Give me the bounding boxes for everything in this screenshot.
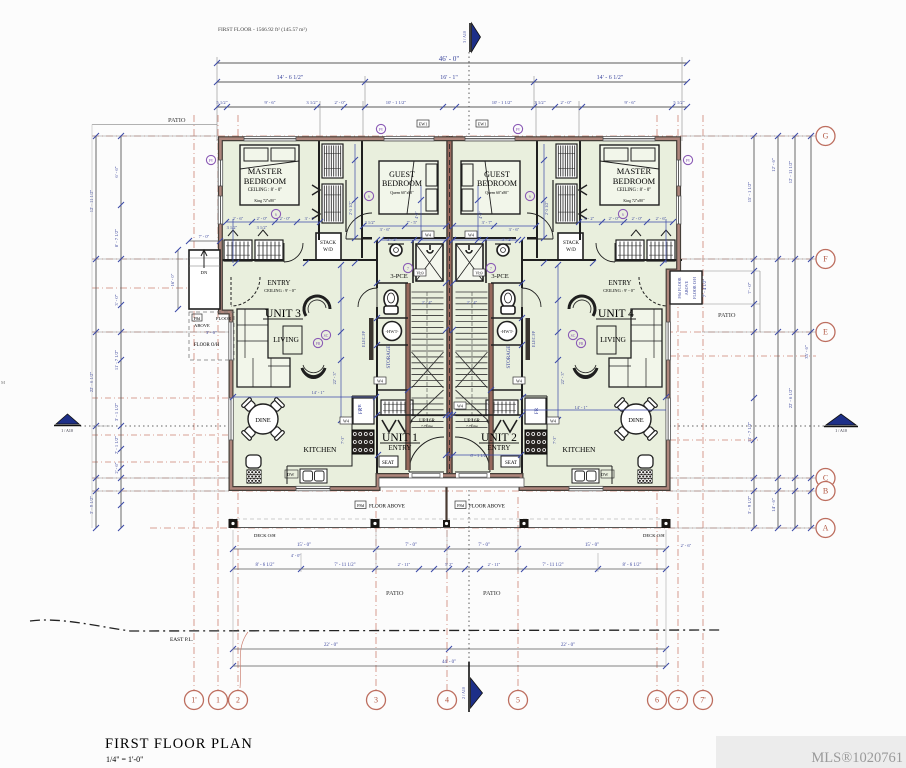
svg-text:PATIO: PATIO xyxy=(718,312,736,319)
svg-text:8' - 6 1/2": 8' - 6 1/2" xyxy=(623,563,642,568)
svg-text:7' - 11 1/2": 7' - 11 1/2" xyxy=(542,563,563,568)
svg-text:22' - 3": 22' - 3" xyxy=(560,371,565,384)
svg-text:3-PCE: 3-PCE xyxy=(390,273,407,280)
svg-text:7'-3": 7'-3" xyxy=(340,436,345,444)
svg-text:7' - 0": 7' - 0" xyxy=(747,282,752,293)
svg-text:3' - 2": 3' - 2" xyxy=(584,216,595,221)
svg-text:2' - 1 1/2": 2' - 1 1/2" xyxy=(114,436,119,454)
svg-text:BEDROOM: BEDROOM xyxy=(613,176,656,186)
svg-text:PB: PB xyxy=(579,342,584,346)
svg-text:22' - 0": 22' - 0" xyxy=(324,643,338,648)
svg-text:PB: PB xyxy=(316,342,321,346)
svg-text:9' - 6": 9' - 6" xyxy=(264,100,275,105)
svg-text:EAST P.L.: EAST P.L. xyxy=(170,637,193,643)
svg-text:8' - 6 1/2": 8' - 6 1/2" xyxy=(256,563,275,568)
svg-text:EW1: EW1 xyxy=(419,122,428,127)
svg-text:King 72"x80": King 72"x80" xyxy=(254,199,276,203)
svg-text:DINE: DINE xyxy=(255,417,271,424)
svg-text:2' - 4": 2' - 4" xyxy=(422,300,433,305)
svg-text:7: 7 xyxy=(676,696,680,705)
svg-text:SC: SC xyxy=(571,334,576,338)
svg-text:1': 1' xyxy=(191,696,197,705)
svg-text:3: 3 xyxy=(374,696,378,705)
svg-text:6: 6 xyxy=(275,213,277,217)
svg-text:FIRST FLOOR PLAN: FIRST FLOOR PLAN xyxy=(105,736,253,752)
svg-text:3' - 9 1/2": 3' - 9 1/2" xyxy=(747,496,752,514)
svg-text:22' - 3": 22' - 3" xyxy=(332,371,337,384)
svg-text:4' - 0": 4' - 0" xyxy=(291,553,301,558)
svg-text:STACK: STACK xyxy=(563,241,579,246)
svg-text:DECK O/H: DECK O/H xyxy=(643,533,665,538)
svg-text:G: G xyxy=(823,132,829,141)
svg-text:-HWT-: -HWT- xyxy=(500,329,514,334)
svg-text:7' - 0": 7' - 0" xyxy=(405,543,417,548)
svg-text:FIRST FLOOR - 1566.92 ft² (: FIRST FLOOR - 1566.92 ft² (145.57 m²) xyxy=(218,26,307,33)
svg-text:5' 2": 5' 2" xyxy=(445,562,453,567)
svg-text:DINE: DINE xyxy=(628,417,644,424)
svg-text:W4: W4 xyxy=(457,404,464,409)
svg-text:CEILING : 9' - 0": CEILING : 9' - 0" xyxy=(603,288,635,293)
svg-text:F8d: F8d xyxy=(457,503,465,508)
svg-text:6: 6 xyxy=(622,213,624,217)
svg-text:7': 7' xyxy=(700,696,706,705)
svg-text:4'-0": 4'-0" xyxy=(414,211,419,219)
svg-text:12' - 11 1/2": 12' - 11 1/2" xyxy=(788,161,793,184)
svg-text:UNIT 2: UNIT 2 xyxy=(481,432,517,444)
svg-text:2' - 0": 2' - 0" xyxy=(257,216,268,221)
svg-text:GUEST: GUEST xyxy=(389,170,415,179)
svg-text:CEILING : 8' - 0": CEILING : 8' - 0" xyxy=(248,188,283,193)
svg-text:2' - 0": 2' - 0" xyxy=(632,216,643,221)
svg-text:10' - 1 1/2": 10' - 1 1/2" xyxy=(386,100,407,105)
svg-text:W4: W4 xyxy=(516,379,523,384)
svg-text:4: 4 xyxy=(445,696,449,705)
svg-text:22' - 0": 22' - 0" xyxy=(561,643,575,648)
svg-text:46' - 0": 46' - 0" xyxy=(439,55,460,63)
svg-text:FLOOR ABOVE: FLOOR ABOVE xyxy=(469,504,505,510)
svg-text:6' - 6": 6' - 6" xyxy=(114,166,119,177)
svg-text:3' - 6": 3' - 6" xyxy=(380,227,391,232)
svg-text:MASTER: MASTER xyxy=(248,166,283,176)
svg-text:W4: W4 xyxy=(377,379,384,384)
svg-text:22' - 6 1/2": 22' - 6 1/2" xyxy=(89,372,94,393)
svg-text:2' - 0": 2' - 0" xyxy=(280,216,291,221)
svg-text:3' - 1 1/2": 3' - 1 1/2" xyxy=(114,403,119,421)
svg-text:3 1/2": 3 1/2" xyxy=(365,220,376,225)
svg-text:B: B xyxy=(823,487,828,496)
svg-text:3 / A10: 3 / A10 xyxy=(462,31,467,43)
svg-text:7.75 rise: 7.75 rise xyxy=(421,424,433,428)
svg-text:E: E xyxy=(823,328,828,337)
svg-text:PV: PV xyxy=(516,128,521,132)
svg-text:FLOOR O/H: FLOOR O/H xyxy=(692,277,697,299)
svg-text:1 / A10: 1 / A10 xyxy=(835,428,847,433)
svg-text:2: 2 xyxy=(236,696,240,705)
svg-text:7'-3": 7'-3" xyxy=(552,436,557,444)
svg-text:-HWT-: -HWT- xyxy=(385,329,399,334)
svg-text:16' - 1": 16' - 1" xyxy=(440,75,458,81)
svg-text:9' - 6": 9' - 6" xyxy=(624,100,635,105)
svg-text:12' - 11 1/2": 12' - 11 1/2" xyxy=(89,190,94,213)
svg-text:F8d: F8d xyxy=(357,503,365,508)
svg-text:3' - 2": 3' - 2" xyxy=(387,237,398,242)
svg-text:EW1: EW1 xyxy=(478,122,487,127)
svg-text:MLS®1020761: MLS®1020761 xyxy=(811,750,903,766)
svg-text:F: F xyxy=(823,255,828,264)
svg-text:BEDROOM: BEDROOM xyxy=(477,179,517,188)
svg-text:16' - 0": 16' - 0" xyxy=(170,273,175,286)
svg-text:Vb9: Vb9 xyxy=(475,271,482,276)
svg-text:14' - 1": 14' - 1" xyxy=(312,390,325,395)
svg-text:14' - 6 1/2": 14' - 6 1/2" xyxy=(277,75,304,81)
svg-text:BEDROOM: BEDROOM xyxy=(382,179,422,188)
svg-text:2'-5 1/2": 2'-5 1/2" xyxy=(348,201,353,215)
svg-text:3 1/2": 3 1/2" xyxy=(257,225,268,230)
svg-text:3' - 2": 3' - 2" xyxy=(305,216,316,221)
svg-text:2' - 4": 2' - 4" xyxy=(467,300,478,305)
svg-text:DW: DW xyxy=(601,472,609,477)
svg-text:ENTRY: ENTRY xyxy=(609,279,632,287)
svg-text:2'-5 1/2": 2'-5 1/2" xyxy=(544,201,549,215)
svg-text:ABOVE: ABOVE xyxy=(684,280,689,295)
svg-text:3 1/2": 3 1/2" xyxy=(534,100,545,105)
svg-text:5 1/2": 5 1/2" xyxy=(673,100,684,105)
svg-text:7' - 5": 7' - 5" xyxy=(407,220,418,225)
svg-text:SEAT: SEAT xyxy=(382,461,394,466)
svg-text:22' - 6 1/2": 22' - 6 1/2" xyxy=(788,388,793,409)
svg-text:UNIT 1: UNIT 1 xyxy=(382,432,418,444)
svg-text:8' - 7 1/2": 8' - 7 1/2" xyxy=(114,229,119,247)
svg-text:FLOOR ABOVE: FLOOR ABOVE xyxy=(369,504,405,510)
svg-text:7' - 11 1/2": 7' - 11 1/2" xyxy=(334,563,355,568)
svg-text:FLOOR O/H: FLOOR O/H xyxy=(194,343,220,348)
svg-text:3' - 6": 3' - 6" xyxy=(509,227,520,232)
svg-text:11' - 7 1/2": 11' - 7 1/2" xyxy=(747,422,752,442)
svg-text:F8d FLOOR: F8d FLOOR xyxy=(677,277,682,298)
svg-text:DECK O/H: DECK O/H xyxy=(254,533,276,538)
svg-text:DN: DN xyxy=(201,270,208,275)
svg-text:DW: DW xyxy=(287,472,295,477)
svg-text:2' - 6": 2' - 6" xyxy=(656,216,667,221)
svg-text:35' - 6": 35' - 6" xyxy=(804,345,809,359)
svg-text:15' - 0": 15' - 0" xyxy=(585,543,599,548)
svg-text:3 1/2": 3 1/2" xyxy=(227,225,238,230)
svg-text:W4: W4 xyxy=(425,233,432,238)
svg-text:6: 6 xyxy=(655,696,659,705)
svg-text:6' - 1 1/2": 6' - 1 1/2" xyxy=(470,453,488,458)
svg-text:6: 6 xyxy=(529,195,531,199)
svg-text:CEILING : 8' - 0": CEILING : 8' - 0" xyxy=(617,188,652,193)
svg-text:W4: W4 xyxy=(468,233,475,238)
svg-text:ENTRY: ENTRY xyxy=(488,444,511,452)
svg-text:STORAGE: STORAGE xyxy=(387,346,392,369)
svg-text:2' - 0": 2' - 0" xyxy=(560,100,571,105)
svg-text:FLOOR: FLOOR xyxy=(216,316,232,321)
svg-text:W4: W4 xyxy=(550,419,557,424)
svg-text:7' - 4 1/2": 7' - 4 1/2" xyxy=(702,279,707,297)
svg-text:7' - 0": 7' - 0" xyxy=(199,234,210,239)
svg-text:KITCHEN: KITCHEN xyxy=(563,445,596,454)
svg-text:15' - 1 1/2": 15' - 1 1/2" xyxy=(747,182,752,203)
svg-text:Queen 60"x80": Queen 60"x80" xyxy=(485,191,509,195)
svg-text:2' - 6": 2' - 6" xyxy=(114,462,119,473)
svg-text:3 1/2": 3 1/2" xyxy=(306,100,317,105)
svg-text:STORAGE: STORAGE xyxy=(507,346,512,369)
svg-text:14' - 6": 14' - 6" xyxy=(771,498,776,512)
svg-text:2' - 11": 2' - 11" xyxy=(488,562,501,567)
svg-text:PV: PV xyxy=(379,128,384,132)
svg-text:15' - 0": 15' - 0" xyxy=(297,543,311,548)
svg-text:ENTRY: ENTRY xyxy=(389,444,412,452)
svg-text:PATIO: PATIO xyxy=(386,590,404,597)
svg-text:14' - 1": 14' - 1" xyxy=(575,405,588,410)
svg-text:1 / A10: 1 / A10 xyxy=(61,428,73,433)
svg-text:UNIT 3: UNIT 3 xyxy=(265,308,301,320)
svg-text:PV: PV xyxy=(209,159,214,163)
svg-text:11' - 7 1/2": 11' - 7 1/2" xyxy=(114,350,119,370)
svg-text:3' - 9 1/2": 3' - 9 1/2" xyxy=(89,496,94,514)
svg-text:FR: FR xyxy=(357,403,362,410)
svg-text:7' - 0": 7' - 0" xyxy=(478,543,490,548)
svg-text:3' - 0": 3' - 0" xyxy=(114,294,119,305)
svg-text:2' - 11": 2' - 11" xyxy=(398,562,411,567)
svg-text:1/4" = 1'-0": 1/4" = 1'-0" xyxy=(106,755,143,764)
svg-text:W/D: W/D xyxy=(566,248,576,253)
svg-text:2' - 6": 2' - 6" xyxy=(681,543,692,548)
svg-text:5 1/2": 5 1/2" xyxy=(216,100,227,105)
svg-text:PV: PV xyxy=(686,159,691,163)
svg-text:2' - 0": 2' - 0" xyxy=(609,216,620,221)
svg-text:GUEST: GUEST xyxy=(484,170,510,179)
svg-text:4'-0": 4'-0" xyxy=(478,211,483,219)
svg-text:Queen 60"x80": Queen 60"x80" xyxy=(390,191,414,195)
svg-text:F8d: F8d xyxy=(194,316,201,321)
svg-text:LIVING: LIVING xyxy=(273,335,299,344)
svg-text:5: 5 xyxy=(516,696,520,705)
svg-text:M: M xyxy=(1,380,5,385)
svg-text:3' - 7": 3' - 7" xyxy=(482,220,493,225)
svg-text:7: 7 xyxy=(490,267,492,271)
svg-text:SC: SC xyxy=(324,334,329,338)
svg-text:FR: FR xyxy=(535,407,540,414)
svg-text:3' - 6": 3' - 6" xyxy=(206,330,217,335)
svg-text:LIVING: LIVING xyxy=(600,335,626,344)
svg-text:SEAT: SEAT xyxy=(505,461,517,466)
svg-text:3' - 2": 3' - 2" xyxy=(502,237,513,242)
svg-text:2' - 6": 2' - 6" xyxy=(233,216,244,221)
svg-text:7: 7 xyxy=(407,267,409,271)
svg-text:3-PCE: 3-PCE xyxy=(491,273,508,280)
svg-text:BEDROOM: BEDROOM xyxy=(244,176,287,186)
svg-text:14' - 6 1/2": 14' - 6 1/2" xyxy=(597,75,624,81)
svg-text:1: 1 xyxy=(216,696,220,705)
svg-text:W4: W4 xyxy=(343,419,350,424)
svg-text:ABOVE: ABOVE xyxy=(194,323,210,328)
svg-text:2 / A10: 2 / A10 xyxy=(461,687,466,699)
svg-text:Vb9: Vb9 xyxy=(416,271,423,276)
svg-text:A: A xyxy=(823,524,829,533)
svg-text:12' - 6": 12' - 6" xyxy=(771,158,776,172)
svg-text:King 72"x80": King 72"x80" xyxy=(623,199,645,203)
svg-text:ELEC.FP: ELEC.FP xyxy=(531,330,536,347)
svg-text:ENTRY: ENTRY xyxy=(268,279,291,287)
svg-text:PATIO: PATIO xyxy=(168,117,186,124)
svg-text:7.75 rise: 7.75 rise xyxy=(466,424,478,428)
svg-text:10' - 1 1/2": 10' - 1 1/2" xyxy=(492,100,513,105)
svg-text:PATIO: PATIO xyxy=(483,590,501,597)
svg-text:MASTER: MASTER xyxy=(617,166,652,176)
svg-text:KITCHEN: KITCHEN xyxy=(304,445,337,454)
svg-text:W/D: W/D xyxy=(323,248,333,253)
svg-text:2' - 0": 2' - 0" xyxy=(334,100,345,105)
svg-text:STACK: STACK xyxy=(320,241,336,246)
svg-text:44' - 0": 44' - 0" xyxy=(442,660,456,665)
svg-text:ELEC.FP: ELEC.FP xyxy=(361,330,366,347)
svg-text:UNIT 4: UNIT 4 xyxy=(598,308,634,320)
svg-text:6: 6 xyxy=(368,195,370,199)
svg-text:CEILING : 9' - 0": CEILING : 9' - 0" xyxy=(264,288,296,293)
